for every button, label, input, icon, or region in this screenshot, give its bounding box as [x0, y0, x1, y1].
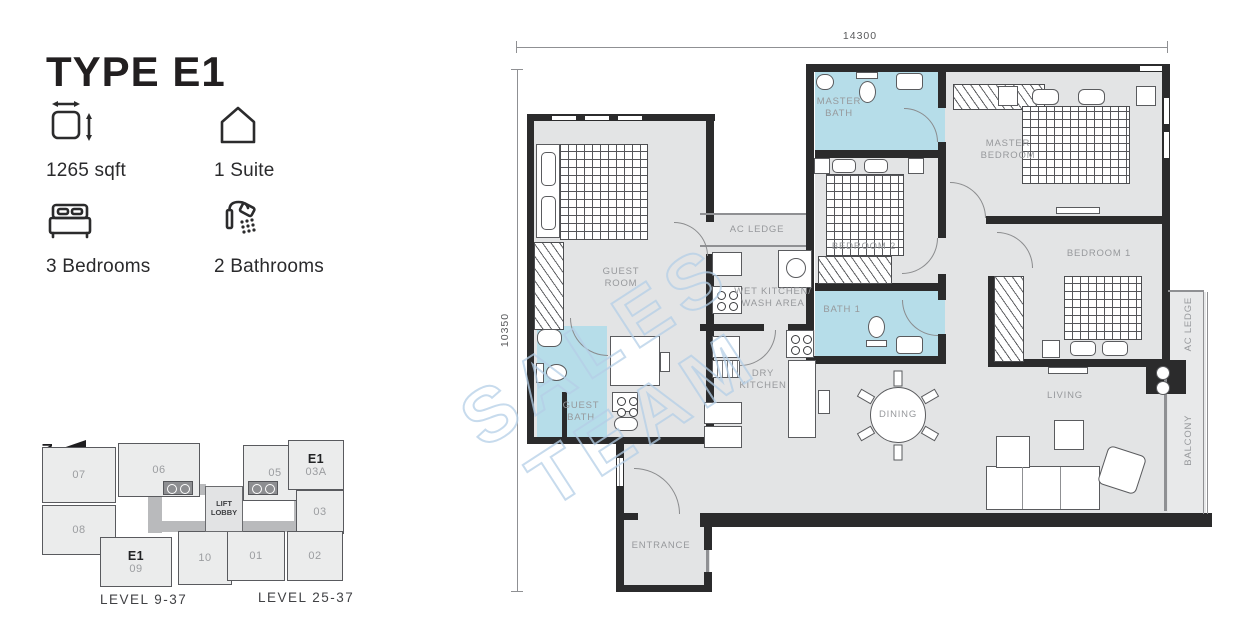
room-label-master-bedroom: MASTER BEDROOM	[956, 138, 1060, 163]
dimension-line-left	[517, 70, 518, 592]
furniture	[1078, 89, 1105, 105]
wall-segment	[938, 142, 946, 238]
wall-segment	[1162, 218, 1170, 367]
stove-burner	[791, 335, 800, 344]
stove-burner	[617, 408, 626, 417]
furniture	[908, 158, 924, 174]
dimension-width: 14300	[830, 30, 890, 42]
furniture	[712, 252, 742, 276]
furniture	[610, 336, 660, 386]
wall-segment	[938, 274, 946, 300]
furniture	[856, 72, 878, 79]
detail-line	[700, 213, 806, 215]
furniture	[537, 329, 562, 347]
furniture	[816, 74, 834, 90]
wall-segment	[704, 572, 712, 592]
wall-segment	[616, 585, 712, 592]
furniture	[546, 364, 567, 381]
window	[1164, 132, 1169, 158]
furniture	[704, 402, 742, 424]
furniture	[1042, 340, 1060, 358]
wardrobe	[534, 242, 564, 330]
room-floor	[622, 520, 710, 590]
dimension-line-top	[517, 47, 1168, 48]
furniture	[832, 159, 856, 173]
wall-segment	[806, 64, 945, 72]
dimension-tick	[511, 69, 523, 70]
sofa-seam	[1022, 467, 1023, 509]
furniture	[896, 336, 923, 354]
room-label-dry-kitchen: DRY KITCHEN	[734, 368, 792, 393]
furniture	[1032, 89, 1059, 105]
furniture	[704, 426, 742, 448]
window	[1140, 66, 1162, 71]
stove-burner	[803, 335, 812, 344]
furniture	[1136, 86, 1156, 106]
room-label-ac-ledge-top: AC LEDGE	[716, 224, 798, 236]
dining-chair	[894, 370, 903, 386]
furniture	[868, 316, 885, 338]
window	[585, 116, 609, 120]
furniture	[1054, 420, 1084, 450]
floor-plan	[0, 0, 1242, 638]
room-label-bedroom-1: BEDROOM 1	[1056, 248, 1142, 260]
furniture	[896, 73, 923, 90]
wall-segment	[938, 64, 1170, 72]
furniture	[986, 466, 1100, 510]
furniture	[536, 363, 544, 383]
wall-segment	[527, 114, 534, 444]
furniture	[864, 159, 888, 173]
room-label-wet-kitchen: WET KITCHEN/ WASH AREA	[734, 286, 812, 311]
wall-segment	[815, 150, 938, 158]
furniture	[660, 352, 670, 372]
wall-segment	[806, 356, 945, 364]
furniture	[1056, 207, 1100, 214]
furniture	[818, 390, 830, 414]
stove-burner	[629, 408, 638, 417]
room-label-guest-bath: GUEST BATH	[556, 400, 606, 425]
furniture	[998, 86, 1018, 106]
furniture	[1070, 341, 1096, 356]
detail-line	[1207, 292, 1208, 514]
room-label-dining: DINING	[870, 409, 926, 421]
furniture	[1048, 367, 1088, 374]
furniture	[1102, 341, 1128, 356]
room-label-guest-room: GUEST ROOM	[590, 266, 652, 291]
dining-chair	[894, 444, 903, 460]
dimension-tick	[516, 41, 517, 53]
furniture	[814, 158, 830, 174]
furniture	[1156, 366, 1170, 380]
room-label-balcony: BALCONY	[1183, 407, 1195, 473]
dimension-height: 10350	[499, 295, 511, 365]
room-label-master-bath: MASTER BATH	[812, 96, 866, 121]
furniture	[996, 436, 1030, 468]
dimension-tick	[1167, 41, 1168, 53]
window	[618, 116, 642, 120]
furniture	[614, 417, 638, 431]
furniture	[788, 360, 816, 438]
detail-line	[1203, 292, 1204, 514]
stove-burner	[629, 397, 638, 406]
detail-line	[700, 245, 806, 247]
wall-segment	[986, 216, 1170, 224]
window	[552, 116, 576, 120]
wall-segment	[616, 513, 638, 520]
stove-burner	[617, 397, 626, 406]
furniture	[786, 258, 806, 278]
wardrobe	[818, 256, 892, 284]
stove-burner	[791, 346, 800, 355]
sofa-seam	[1060, 467, 1061, 509]
bed	[1064, 276, 1142, 340]
wardrobe	[994, 276, 1024, 362]
room-label-entrance: ENTRANCE	[624, 540, 698, 552]
stove-burner	[717, 302, 726, 311]
stove-burner	[803, 346, 812, 355]
detail-line	[619, 458, 620, 486]
wall-segment	[706, 114, 714, 222]
furniture	[1156, 381, 1170, 395]
wall-segment	[815, 283, 938, 291]
room-label-living: LIVING	[1034, 390, 1096, 402]
furniture	[541, 152, 556, 186]
room-label-ac-ledge-right: AC LEDGE	[1183, 293, 1195, 355]
bed	[560, 144, 648, 240]
wall-segment	[616, 520, 624, 592]
furniture	[541, 196, 556, 230]
window	[617, 458, 623, 486]
detail-line	[1168, 290, 1204, 292]
room-label-bath-1: BATH 1	[818, 304, 866, 316]
wall-segment	[700, 513, 1212, 527]
floorplan-page: TYPE E1 1265 sqft 1 Suite 3 Bedrooms	[0, 0, 1242, 638]
dimension-tick	[511, 591, 523, 592]
stove-burner	[717, 291, 726, 300]
furniture	[712, 336, 740, 358]
room-label-bedroom-2: BEDROOM 2	[818, 241, 910, 253]
detail-line	[706, 550, 709, 572]
furniture	[866, 340, 887, 347]
window	[1164, 98, 1169, 124]
